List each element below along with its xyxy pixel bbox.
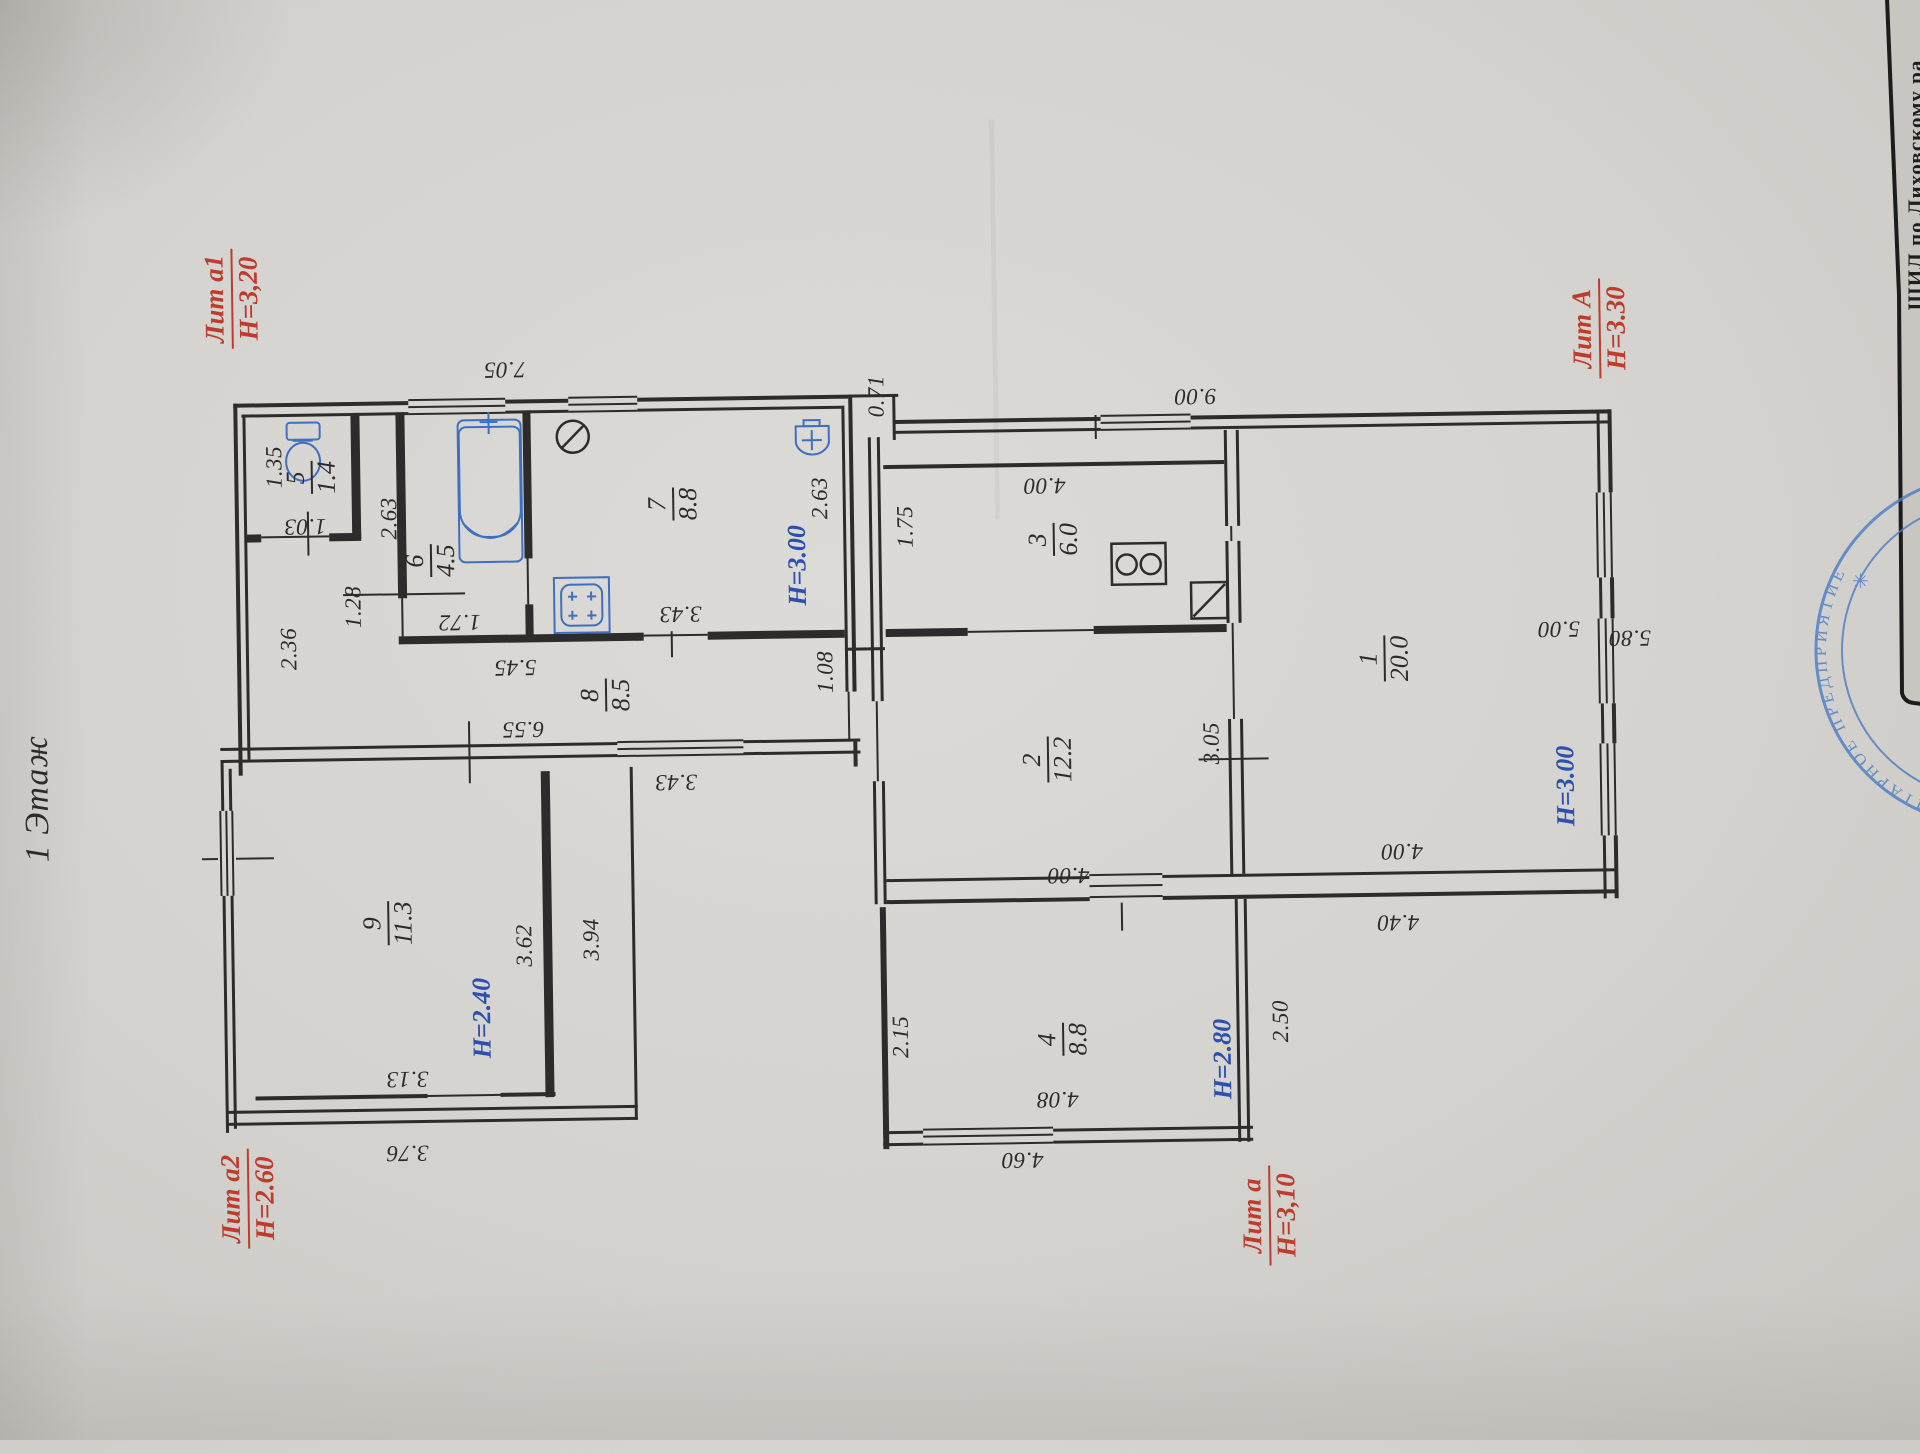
room-number: 5 <box>283 471 310 484</box>
dim-label: 2.63 <box>377 497 401 540</box>
room-label: 212.2 <box>1019 737 1077 783</box>
height-label: Н=3.00 <box>1552 746 1580 827</box>
dim-label: 5.45 <box>494 656 537 680</box>
room-number: 9 <box>359 917 386 930</box>
dim-label: 4.00 <box>1023 474 1066 498</box>
dim-label: 3.94 <box>579 918 603 961</box>
section-height: Н=3,10 <box>1272 1173 1301 1257</box>
dim-label: 7.05 <box>483 358 526 382</box>
dim-label: 4.08 <box>1036 1088 1079 1112</box>
dim-label: 1.28 <box>341 586 365 629</box>
dim-label: 1.72 <box>438 610 481 634</box>
room-area: 8.5 <box>607 679 634 712</box>
room-label: 88.5 <box>577 679 635 712</box>
labels-layer: 1 Этаж 1.352.631.282.362.630.711.751.082… <box>0 0 1920 1454</box>
room-number: 6 <box>402 554 429 567</box>
section-height: Н=2.60 <box>250 1156 279 1240</box>
room-label: 911.3 <box>359 901 417 945</box>
room-area: 4.5 <box>432 544 459 577</box>
dim-label: 3.62 <box>512 924 536 967</box>
room-label: 120.0 <box>1355 636 1413 682</box>
dim-label: 3.05 <box>1199 722 1223 765</box>
dim-label: 3.43 <box>659 602 702 626</box>
section-letter: Лит А <box>1568 289 1597 369</box>
dim-label: 3.13 <box>386 1067 429 1091</box>
room-label: 64.5 <box>402 544 460 577</box>
dim-label: 3.76 <box>386 1141 429 1165</box>
dim-label: 2.36 <box>277 628 301 671</box>
room-label: 78.8 <box>644 488 702 521</box>
section-letter: Лит а1 <box>200 255 229 344</box>
section-title: Лит а2Н=2.60 <box>217 1148 280 1249</box>
dim-label: 4.00 <box>1381 839 1424 863</box>
section-title: Лит аН=3,10 <box>1238 1165 1301 1266</box>
room-area: 6.0 <box>1055 523 1082 556</box>
height-label: Н=3.00 <box>784 525 812 606</box>
room-area: 12.2 <box>1049 737 1076 783</box>
height-label: Н=2.80 <box>1209 1019 1237 1100</box>
dim-label: 2.63 <box>808 477 832 520</box>
dim-label: 0.71 <box>864 375 888 418</box>
dim-label: 4.00 <box>1047 863 1090 887</box>
room-number: 7 <box>644 498 671 511</box>
dim-label: 1.03 <box>284 515 327 539</box>
height-label: Н=2.40 <box>469 978 497 1059</box>
dim-label: 5.00 <box>1537 617 1580 641</box>
section-height: Н=3,20 <box>234 256 263 340</box>
photographed-page: УНИТАРНОЕ ПРЕДПРИЯТИЕ ✳ ШИЛ по Лиховском… <box>0 0 1920 1440</box>
room-label: 51.4 <box>283 461 341 494</box>
room-area: 11.3 <box>390 901 417 945</box>
section-title: Лит АН=3.30 <box>1568 278 1631 379</box>
section-letter: Лит а <box>1238 1178 1267 1253</box>
room-area: 8.8 <box>1065 1023 1092 1056</box>
room-label: 36.0 <box>1025 523 1083 556</box>
section-height: Н=3.30 <box>1602 286 1631 370</box>
dim-label: 5.80 <box>1609 626 1652 650</box>
room-area: 8.8 <box>675 488 702 521</box>
dim-label: 3.43 <box>655 770 698 794</box>
dim-label: 2.15 <box>889 1016 913 1059</box>
dim-label: 4.60 <box>1001 1148 1044 1172</box>
dim-label: 9.00 <box>1174 384 1217 408</box>
section-letter: Лит а2 <box>217 1155 246 1244</box>
room-number: 1 <box>1356 652 1383 665</box>
room-area: 1.4 <box>313 461 340 494</box>
section-title: Лит а1Н=3,20 <box>200 248 263 349</box>
room-number: 3 <box>1025 533 1052 546</box>
room-label: 48.8 <box>1034 1023 1092 1056</box>
dim-label: 6.55 <box>502 717 545 741</box>
dim-label: 1.75 <box>893 505 917 548</box>
room-area: 20.0 <box>1386 636 1413 682</box>
dim-label: 2.50 <box>1268 1000 1292 1043</box>
dim-label: 4.40 <box>1377 910 1420 934</box>
room-number: 8 <box>577 689 604 702</box>
room-number: 2 <box>1019 753 1046 766</box>
floor-label: 1 Этаж <box>20 735 57 863</box>
room-number: 4 <box>1034 1033 1061 1046</box>
dim-label: 1.08 <box>813 651 837 694</box>
scanned-floorplan-photo: { "document": { "floor_label": "1 Этаж",… <box>0 0 1920 1440</box>
